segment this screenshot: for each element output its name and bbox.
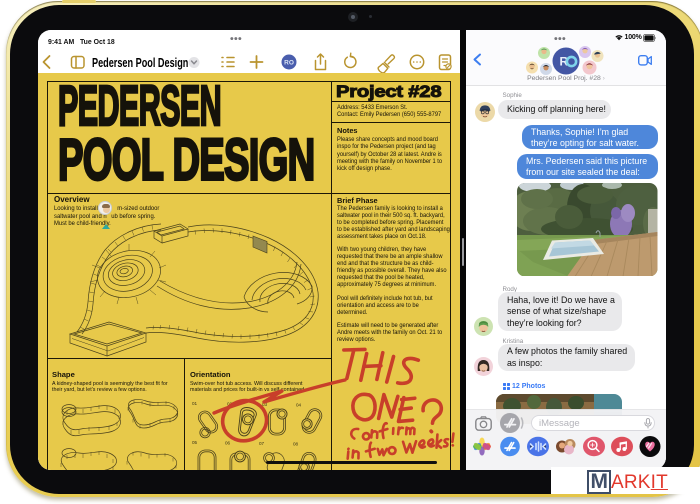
svg-text:RO: RO [284, 60, 294, 67]
